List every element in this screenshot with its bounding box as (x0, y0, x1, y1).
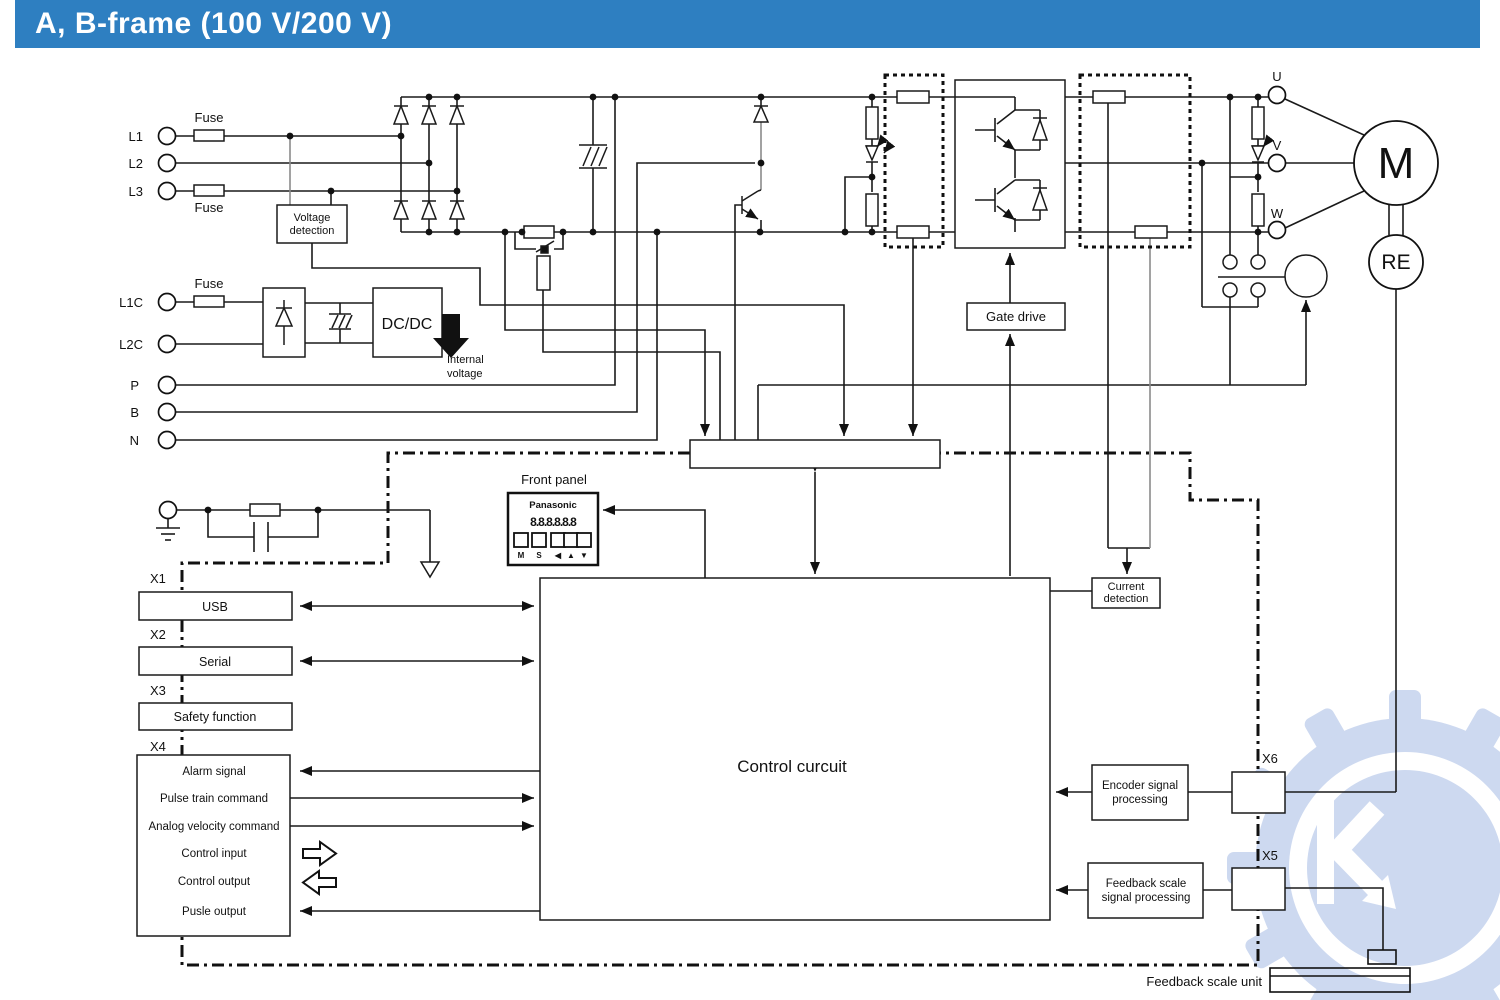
gate-drive-label: Gate drive (986, 309, 1046, 324)
terminal-n: N (130, 433, 139, 448)
front-panel-caption: Front panel (521, 472, 587, 487)
terminal-w: W (1271, 206, 1284, 221)
voltage-detection-label-1: Voltage (294, 212, 331, 224)
fuse-label-control: Fuse (195, 276, 224, 291)
connector-x1: X1 (150, 571, 166, 586)
fuse-label-top: Fuse (195, 110, 224, 125)
x4-row-control-input: Control input (181, 848, 247, 860)
x4-row-pulse-output: Pusle output (182, 906, 247, 918)
terminal-u: U (1272, 69, 1281, 84)
connector-x5: X5 (1262, 848, 1278, 863)
connector-x4: X4 (150, 739, 166, 754)
encoder-label-2: processing (1112, 794, 1168, 806)
motor: M RE (1354, 121, 1438, 289)
terminal-l3: L3 (129, 184, 143, 199)
voltage-detection-block: Voltage detection (277, 205, 347, 243)
dcdc-label: DC/DC (382, 316, 433, 333)
control-circuit-block: Control curcuit (540, 578, 1050, 920)
x4-row-alarm: Alarm signal (182, 766, 245, 778)
panel-button-left: ◀ (554, 551, 562, 560)
current-detection-block: Current detection (1092, 578, 1160, 608)
usb-label: USB (202, 600, 228, 614)
terminal-b: B (130, 405, 139, 420)
panel-button-up: ▲ (567, 551, 575, 560)
feedback-label-1: Feedback scale (1106, 878, 1187, 890)
seven-segment-display: 8.8.8.8.8.8 (530, 515, 577, 529)
control-circuit-label: Control curcuit (737, 757, 847, 776)
x4-row-pulse: Pulse train command (160, 793, 268, 805)
igbt-module (955, 80, 1065, 248)
current-detection-label-1: Current (1108, 581, 1145, 593)
fuse-label-bottom: Fuse (195, 200, 224, 215)
connector-x6: X6 (1262, 751, 1278, 766)
rotary-encoder-label: RE (1381, 251, 1410, 274)
control-rectifier-block (263, 288, 305, 357)
feedback-label-2: signal processing (1102, 892, 1191, 904)
dynamic-brake-relay (1223, 255, 1327, 297)
control-output-arrow-icon (303, 871, 336, 894)
voltage-detection-label-2: detection (290, 225, 335, 237)
connector-x2: X2 (150, 627, 166, 642)
feedback-scale-unit-label: Feedback scale unit (1146, 974, 1262, 989)
safety-label: Safety function (174, 710, 257, 724)
terminal-v: V (1273, 138, 1282, 153)
serial-label: Serial (199, 655, 231, 669)
encoder-block: Encoder signal processing X6 (1092, 751, 1285, 820)
panel-button-s: S (536, 551, 542, 560)
dcdc-block: DC/DC Internal voltage (373, 288, 484, 380)
terminal-l2: L2 (129, 156, 143, 171)
motor-label: M (1378, 139, 1415, 188)
interface-bar (690, 440, 940, 468)
terminal-l1c: L1C (119, 295, 143, 310)
encoder-label-1: Encoder signal (1102, 780, 1178, 792)
circuit-diagram: Fuse Fuse Fuse (0, 0, 1500, 1000)
terminal-l1: L1 (129, 129, 143, 144)
panel-button-m: M (518, 551, 525, 560)
internal-voltage-label-1: Internal (447, 354, 484, 366)
terminal-p: P (130, 378, 139, 393)
io-connectors: X1 USB X2 Serial X3 Safety function X4 A… (137, 571, 336, 936)
internal-voltage-label-2: voltage (447, 368, 482, 380)
current-detection-label-2: detection (1104, 593, 1149, 605)
gate-drive-block: Gate drive (967, 303, 1065, 330)
x4-row-control-output: Control output (178, 876, 251, 888)
x4-row-analog: Analog velocity command (148, 821, 279, 833)
front-panel: Front panel Panasonic 8.8.8.8.8.8 M S ◀ … (508, 472, 598, 565)
front-panel-brand: Panasonic (529, 500, 577, 511)
fuses: Fuse Fuse Fuse (194, 110, 224, 307)
watermark-gear-logo (1227, 690, 1500, 1000)
terminal-l2c: L2C (119, 337, 143, 352)
control-input-arrow-icon (303, 842, 336, 865)
panel-button-down: ▼ (580, 551, 588, 560)
connector-x3: X3 (150, 683, 166, 698)
